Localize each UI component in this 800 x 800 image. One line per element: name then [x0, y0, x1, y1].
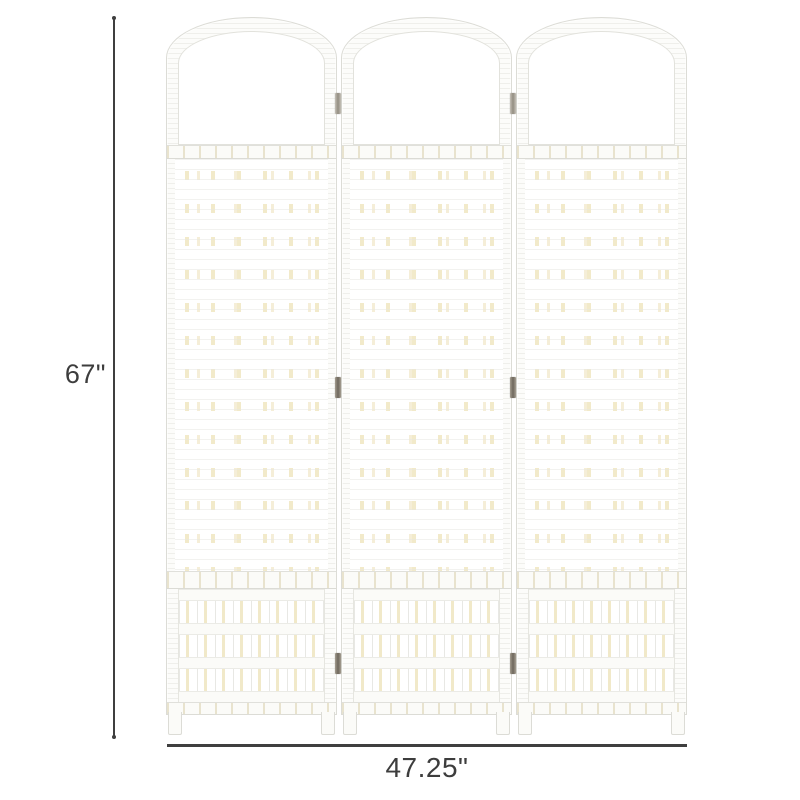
height-dimension-label: 67" — [28, 361, 106, 388]
divider-panel-3 — [516, 17, 687, 715]
hinge-junction1-bottom — [335, 653, 341, 674]
panel-2-lattice-bottom — [353, 589, 500, 702]
panel-3-left-leg — [518, 712, 532, 735]
width-dimension-label: 47.25" — [167, 754, 687, 782]
panel-2-top-rail — [342, 145, 511, 159]
panel-2-mid-rail — [342, 571, 511, 589]
panel-3-arched-lattice-top — [528, 31, 675, 145]
hinge-junction2-bottom — [510, 653, 516, 674]
divider-panel-1 — [166, 17, 337, 715]
panel-3-right-leg — [671, 712, 685, 735]
panel-2-left-leg — [343, 712, 357, 735]
panel-2-woven-center — [350, 159, 503, 571]
height-dimension-line — [113, 17, 115, 738]
panel-1-right-leg — [321, 712, 335, 735]
room-divider — [166, 17, 688, 735]
hinge-junction1-middle — [335, 377, 341, 398]
width-dimension-line — [167, 744, 687, 747]
panel-1-arched-lattice-top — [178, 31, 325, 145]
panel-2-right-leg — [496, 712, 510, 735]
hinge-junction2-top — [510, 93, 516, 114]
hinge-junction1-top — [335, 93, 341, 114]
divider-panel-2 — [341, 17, 512, 715]
panel-1-bottom-rail — [167, 702, 336, 714]
panel-1-woven-center — [175, 159, 328, 571]
panel-3-bottom-rail — [517, 702, 686, 714]
panel-1-left-leg — [168, 712, 182, 735]
panel-3-lattice-bottom — [528, 589, 675, 702]
panel-2-arched-lattice-top — [353, 31, 500, 145]
hinge-junction2-middle — [510, 377, 516, 398]
panel-1-lattice-bottom — [178, 589, 325, 702]
panel-3-top-rail — [517, 145, 686, 159]
panel-3-woven-center — [525, 159, 678, 571]
panel-2-bottom-rail — [342, 702, 511, 714]
panel-3-mid-rail — [517, 571, 686, 589]
panel-1-mid-rail — [167, 571, 336, 589]
product-dimension-image: 67" 47.25" — [0, 0, 800, 800]
panel-1-top-rail — [167, 145, 336, 159]
